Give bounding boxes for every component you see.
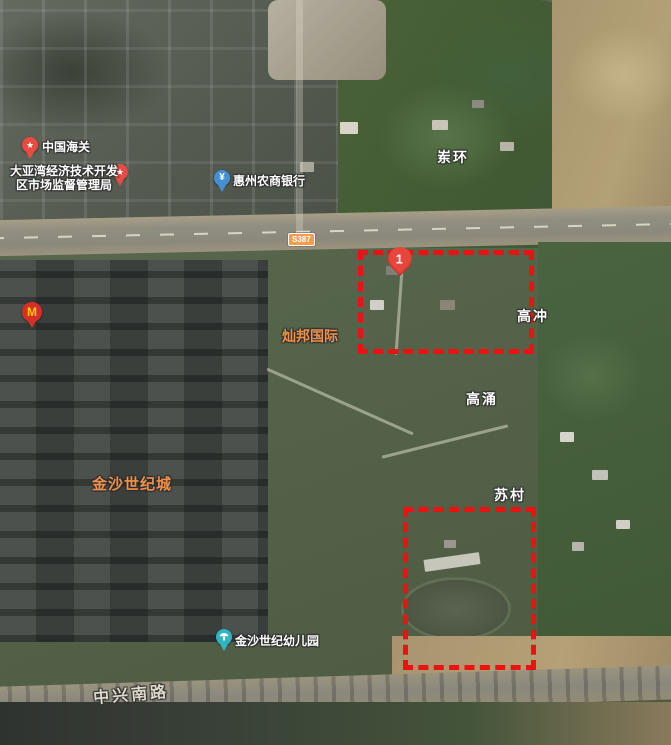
construction-site-top <box>268 0 386 80</box>
building-roof <box>572 542 584 551</box>
building-roof <box>432 120 448 130</box>
marker-number: 1 <box>387 248 411 272</box>
star-icon: ★ <box>22 137 38 153</box>
poi-label-line2: 区市场监督管理局 <box>10 178 118 192</box>
building-roof <box>560 432 574 442</box>
city-street <box>296 0 303 232</box>
yuan-icon: ¥ <box>214 170 230 186</box>
satellite-map[interactable]: 1 ★ ★ ¥ M 中国海关 大亚湾经济技术开发 区市场监督管理局 惠州农商银行… <box>0 0 671 745</box>
complex-label-canbang[interactable]: 灿邦国际 <box>282 326 338 346</box>
poi-label-market-bureau[interactable]: 大亚湾经济技术开发 区市场监督管理局 <box>10 164 118 192</box>
complex-label-jinsha[interactable]: 金沙世纪城 <box>92 473 172 494</box>
route-badge-s387: S387 <box>288 233 315 246</box>
poi-label-kindergarten[interactable]: 金沙世纪幼儿园 <box>235 632 319 649</box>
poi-label-bank[interactable]: 惠州农商银行 <box>233 172 305 189</box>
building-roof <box>340 122 358 134</box>
poi-label-line1: 大亚湾经济技术开发 <box>10 164 118 178</box>
area-label-sucun[interactable]: 苏村 <box>494 485 526 505</box>
building-roof <box>472 100 484 108</box>
building-roof <box>616 520 630 529</box>
annotation-rect-north-site <box>358 250 534 354</box>
area-label-gaoyong[interactable]: 高涌 <box>466 389 498 409</box>
mcdonalds-pin-icon[interactable]: M <box>22 302 42 322</box>
mushroom-icon <box>219 632 229 642</box>
poi-label-customs[interactable]: 中国海关 <box>42 138 90 155</box>
area-label-gaochong[interactable]: 高冲 <box>517 306 549 326</box>
customs-pin-icon[interactable]: ★ <box>22 137 38 153</box>
bank-pin-icon[interactable]: ¥ <box>214 170 230 186</box>
building-roof <box>592 470 608 480</box>
bottom-edge-terrain <box>0 702 671 745</box>
area-label-donghuan[interactable]: 岽环 <box>437 147 469 167</box>
kindergarten-pin-icon[interactable] <box>216 629 232 645</box>
golden-arches-icon: M <box>22 302 42 322</box>
annotation-rect-south-site <box>403 507 536 670</box>
lane-markings <box>0 223 671 240</box>
village-greenery-right <box>538 242 671 687</box>
building-roof <box>500 142 514 151</box>
